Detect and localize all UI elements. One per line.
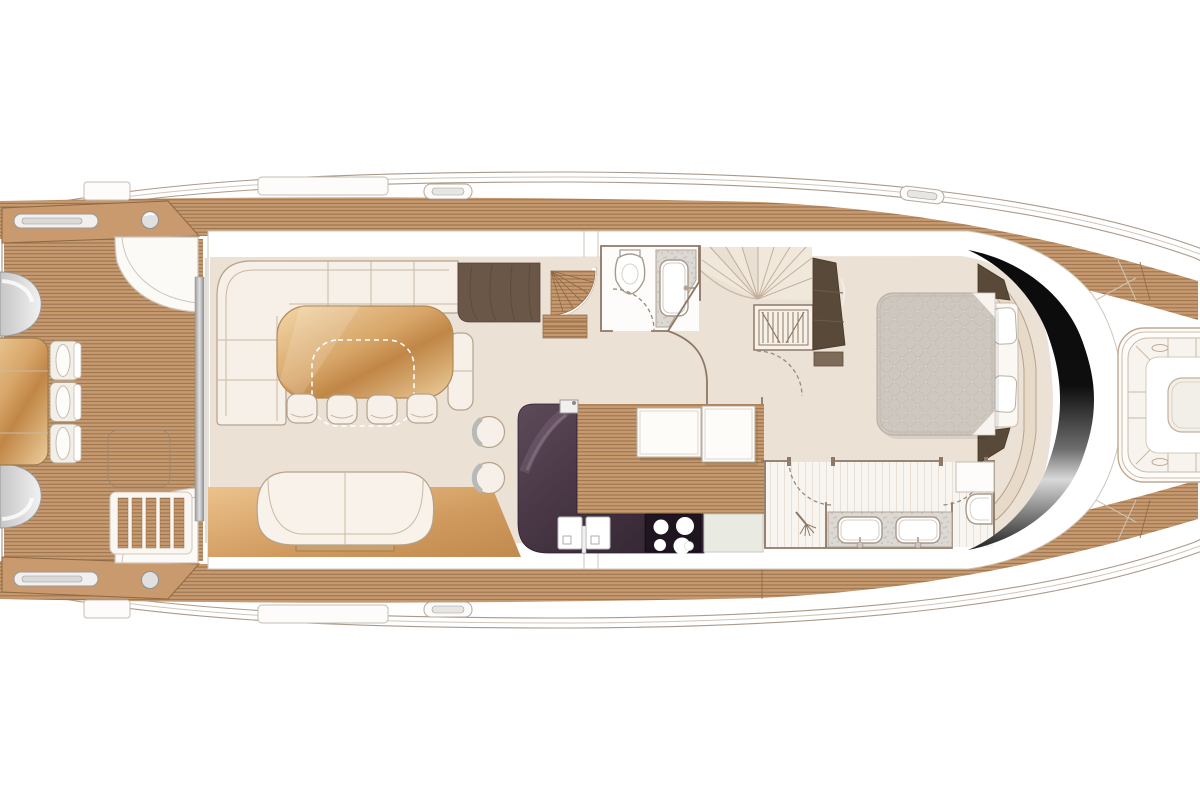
burner-icon (654, 520, 669, 535)
island-unit (702, 406, 755, 462)
toilet-icon (615, 250, 644, 294)
cockpit-chair (50, 383, 81, 422)
storage-cabinet (956, 462, 994, 492)
stool (327, 395, 357, 424)
yacht-deck-plan: motor-yacht-main-deck-floor-plan (0, 0, 1200, 800)
cleat-icon (424, 602, 472, 617)
galley (518, 400, 764, 555)
island-units (637, 406, 758, 466)
deck-locker-outline (258, 177, 388, 195)
louvered-locker (754, 305, 813, 350)
stool (407, 394, 437, 423)
bow-seating (1118, 328, 1200, 482)
burner-icon (676, 517, 694, 535)
cockpit-table (0, 338, 48, 465)
door-hinge (831, 457, 835, 466)
master-bathroom (762, 457, 994, 548)
stool (367, 395, 397, 424)
worktop (704, 514, 763, 552)
side-boarding-steps (110, 492, 192, 554)
faucet-icon (582, 526, 586, 553)
cockpit-chair (50, 341, 81, 380)
island-unit (637, 408, 701, 457)
faucet-icon (857, 542, 863, 548)
burner-icon (654, 539, 666, 551)
deck-locker-outline (258, 605, 388, 623)
cockpit-chairs (50, 341, 81, 463)
stool (287, 394, 317, 423)
yacht-floor-plan-canvas: motor-yacht-main-deck-floor-plan (0, 0, 1200, 800)
stairs-lower-treads (543, 315, 587, 338)
deck-fitting (84, 600, 130, 618)
deck-fitting (84, 182, 130, 200)
day-head (601, 246, 699, 331)
cooktop (645, 514, 701, 555)
door-hinge (939, 457, 943, 466)
cleat-icon (424, 184, 472, 199)
winch-icon (142, 572, 159, 589)
faucet-icon (915, 542, 921, 548)
bow-table (1168, 378, 1200, 432)
cockpit-chair (50, 424, 81, 463)
salon-door-mullion (195, 277, 204, 521)
